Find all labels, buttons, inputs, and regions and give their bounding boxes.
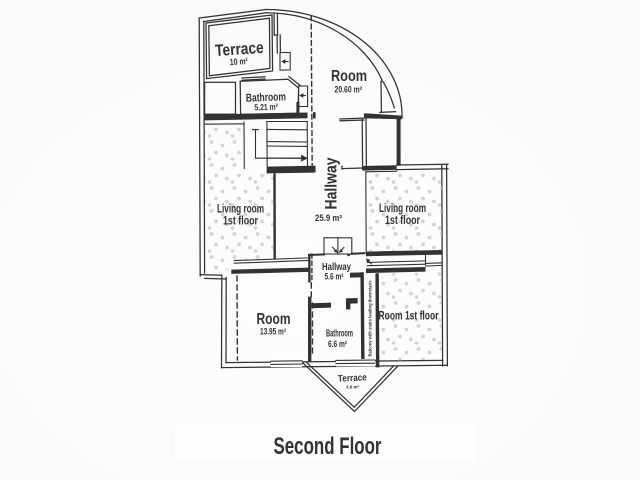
svg-text:25.9 m²: 25.9 m² <box>315 213 342 223</box>
svg-text:3.6 m²: 3.6 m² <box>346 385 359 391</box>
svg-text:Living room: Living room <box>217 204 264 216</box>
svg-text:1st floor: 1st floor <box>223 216 258 228</box>
svg-text:Terrace: Terrace <box>338 372 368 385</box>
svg-text:1st floor: 1st floor <box>385 215 420 227</box>
svg-text:Room 1st floor: Room 1st floor <box>379 309 439 323</box>
svg-text:13.95 m²: 13.95 m² <box>260 327 286 337</box>
svg-text:5.6 m²: 5.6 m² <box>325 272 344 282</box>
svg-text:Room: Room <box>331 68 367 85</box>
svg-text:6.6 m²: 6.6 m² <box>328 339 347 349</box>
svg-text:Room: Room <box>257 311 291 328</box>
svg-text:Second Floor: Second Floor <box>274 433 382 460</box>
svg-text:5.21 m²: 5.21 m² <box>254 102 278 113</box>
svg-text:Balcony with stairs leading do: Balcony with stairs leading downstairs <box>368 280 373 357</box>
svg-text:Bathroom: Bathroom <box>326 329 353 340</box>
svg-text:Living room: Living room <box>379 203 426 215</box>
svg-text:Hallway: Hallway <box>322 157 341 209</box>
svg-text:20.60 m²: 20.60 m² <box>335 85 363 95</box>
svg-text:10 m²: 10 m² <box>229 56 248 67</box>
